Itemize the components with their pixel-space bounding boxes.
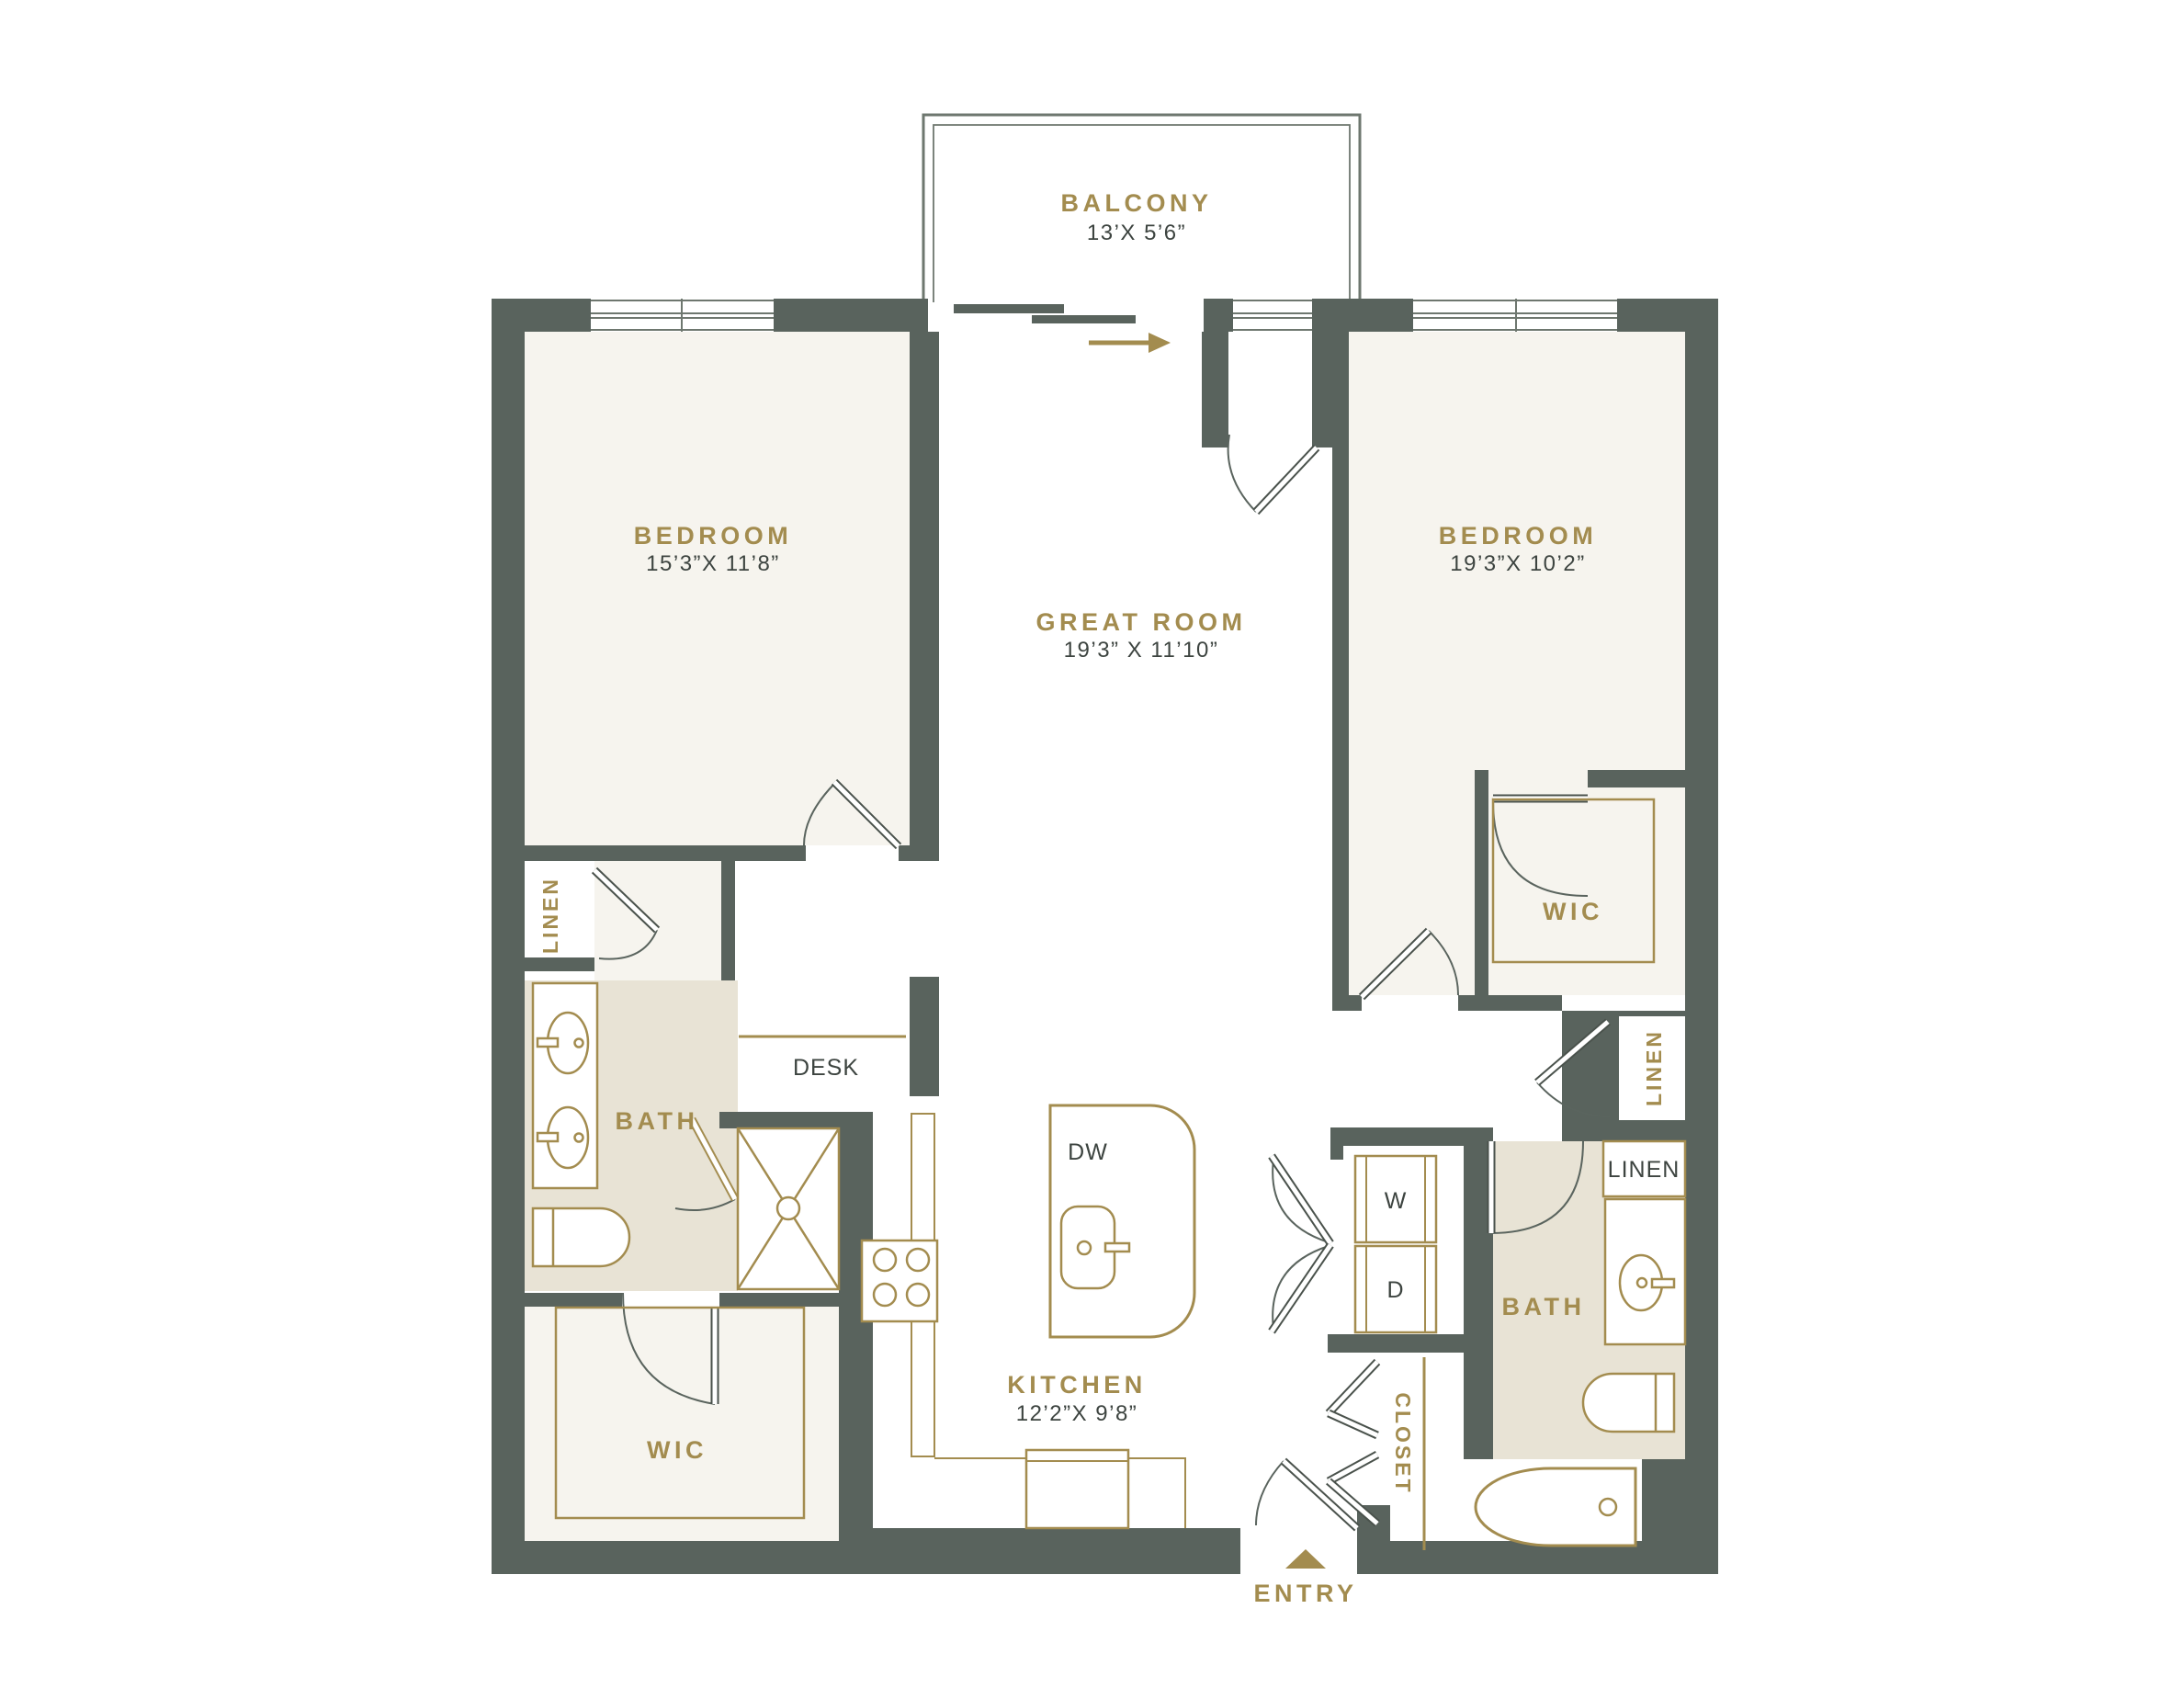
sink-drain-icon bbox=[575, 1039, 583, 1048]
toilet-icon bbox=[1583, 1374, 1674, 1432]
wall-segment bbox=[1202, 332, 1228, 447]
wall-segment bbox=[1328, 1334, 1464, 1353]
room-label-great-room: GREAT ROOM bbox=[1036, 608, 1247, 636]
room-dims-kitchen: 12’2”X 9’8” bbox=[1016, 1401, 1138, 1426]
wall-segment bbox=[719, 1293, 839, 1307]
floor-plan-canvas: BALCONY 13’X 5’6” bbox=[0, 0, 2184, 1688]
balcony-door-arrow-icon bbox=[1089, 333, 1171, 353]
wall-segment bbox=[910, 977, 939, 1096]
wall-segment bbox=[525, 1293, 622, 1307]
room-label-wic-right: WIC bbox=[1543, 898, 1603, 925]
wall-segment bbox=[721, 861, 735, 980]
floor-plan: BALCONY 13’X 5’6” bbox=[0, 0, 2184, 1688]
wall-bedroom-left bbox=[910, 332, 939, 861]
faucet-icon bbox=[538, 1038, 558, 1047]
wall-segment bbox=[1204, 299, 1233, 332]
label-dryer: D bbox=[1386, 1277, 1404, 1303]
wall-bottom bbox=[492, 1541, 1240, 1574]
room-label-wic-left: WIC bbox=[647, 1436, 707, 1464]
bedroom-left-hall-floor bbox=[594, 861, 721, 980]
slider-panel bbox=[1032, 315, 1136, 323]
wall-segment bbox=[1330, 1146, 1343, 1160]
stove-icon bbox=[862, 1241, 937, 1321]
wall-segment bbox=[839, 1112, 873, 1541]
wall-right bbox=[1685, 299, 1718, 1574]
label-washer: W bbox=[1385, 1188, 1408, 1214]
wall-segment bbox=[1458, 995, 1562, 1011]
wall-segment bbox=[1312, 299, 1413, 332]
wall-segment bbox=[1475, 787, 1488, 995]
wall-segment bbox=[774, 299, 928, 332]
kitchen-cabinet bbox=[1026, 1450, 1128, 1528]
room-dims-bedroom-right: 19’3”X 10’2” bbox=[1450, 551, 1585, 576]
room-label-balcony: BALCONY bbox=[1061, 189, 1213, 217]
faucet-icon bbox=[1652, 1279, 1674, 1287]
door-wd-bifold bbox=[1272, 1156, 1330, 1331]
label-entry: ENTRY bbox=[1253, 1580, 1357, 1607]
window-glass bbox=[1233, 299, 1312, 332]
arrow-head bbox=[1149, 333, 1171, 353]
room-fills bbox=[525, 332, 1685, 1541]
room-label-bedroom-left: BEDROOM bbox=[634, 522, 793, 549]
window-vestibule bbox=[1233, 299, 1312, 332]
label-closet: CLOSET bbox=[1391, 1392, 1415, 1494]
window-bedroom-left bbox=[591, 299, 774, 332]
room-label-bath-left: BATH bbox=[616, 1107, 699, 1135]
wall-segment bbox=[899, 845, 939, 861]
wall-segment bbox=[1332, 995, 1362, 1011]
wall-segment bbox=[525, 957, 594, 971]
faucet-icon bbox=[538, 1133, 558, 1141]
bedroom-left-floor bbox=[525, 332, 923, 845]
balcony-sliding-door bbox=[954, 304, 1136, 323]
sink-drain-icon bbox=[1078, 1241, 1091, 1254]
shower-icon bbox=[738, 1128, 839, 1289]
room-dims-great-room: 19’3” X 11’10” bbox=[1064, 638, 1219, 663]
wall-bedroom-right bbox=[1332, 447, 1349, 995]
wall-segment bbox=[1330, 1127, 1487, 1146]
wic-left-floor bbox=[525, 1307, 839, 1541]
wall-segment bbox=[1312, 332, 1349, 447]
room-label-bath-right: BATH bbox=[1502, 1293, 1586, 1320]
bedroom-right-floor bbox=[1349, 332, 1685, 995]
label-linen-left: LINEN bbox=[538, 877, 562, 954]
label-desk: DESK bbox=[793, 1055, 859, 1081]
label-linen-bath-right: LINEN bbox=[1608, 1157, 1680, 1183]
wall-segment bbox=[1642, 1459, 1685, 1541]
label-dishwasher: DW bbox=[1068, 1139, 1108, 1165]
slider-panel bbox=[954, 304, 1064, 313]
wall-left bbox=[492, 299, 525, 1574]
room-dims-bedroom-left: 15’3”X 11’8” bbox=[646, 551, 780, 576]
wall-segment bbox=[1588, 770, 1685, 787]
door-vestibule bbox=[1228, 435, 1317, 512]
room-label-kitchen: KITCHEN bbox=[1007, 1371, 1147, 1399]
sink-drain-icon bbox=[575, 1134, 583, 1142]
bathtub-icon bbox=[1476, 1468, 1635, 1546]
wall-segment bbox=[719, 1112, 839, 1128]
room-dims-balcony: 13’X 5’6” bbox=[1087, 221, 1186, 245]
window-bedroom-right bbox=[1413, 299, 1617, 332]
entry-marker-icon bbox=[1285, 1549, 1326, 1569]
wall-segment bbox=[839, 1528, 1240, 1541]
faucet-icon bbox=[1105, 1243, 1129, 1252]
balcony: BALCONY 13’X 5’6” bbox=[922, 113, 1362, 302]
sink-drain-icon bbox=[1637, 1278, 1646, 1287]
label-linen-hall-right: LINEN bbox=[1642, 1029, 1666, 1106]
toilet-icon bbox=[533, 1208, 629, 1266]
wall-segment bbox=[1475, 770, 1488, 787]
wall-segment bbox=[525, 845, 806, 861]
entry-marker: ENTRY bbox=[1253, 1549, 1357, 1607]
door-closet-bifold bbox=[1329, 1362, 1377, 1524]
room-label-bedroom-right: BEDROOM bbox=[1439, 522, 1598, 549]
